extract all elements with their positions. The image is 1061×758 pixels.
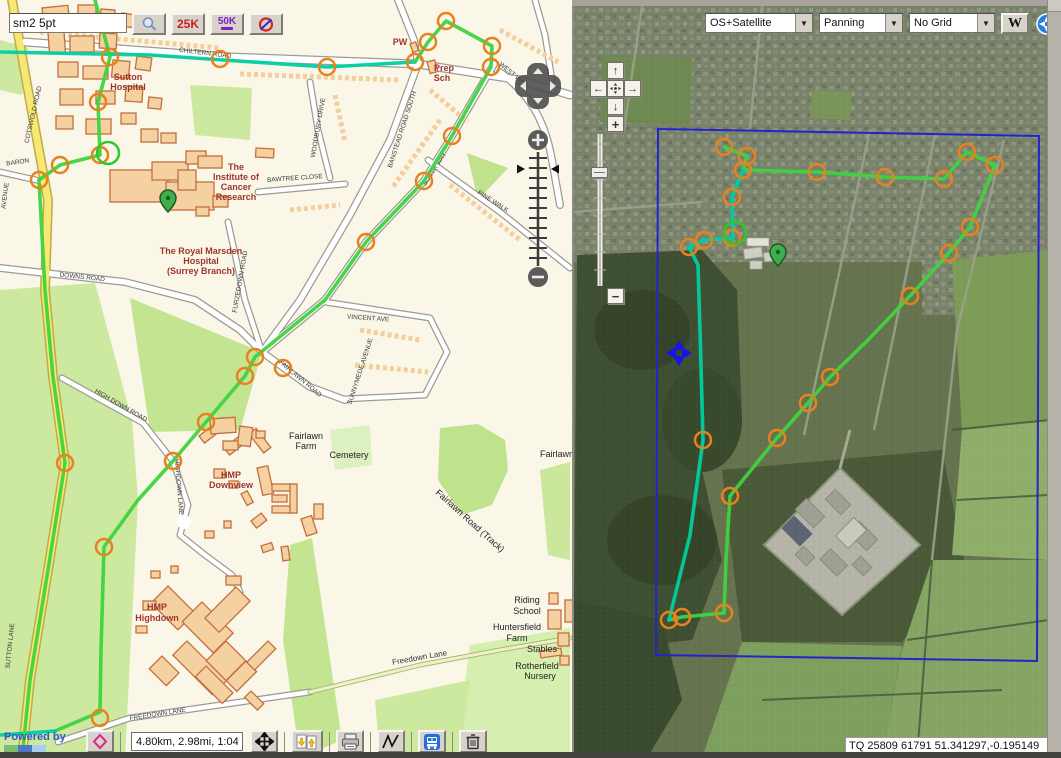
zoom-level-marker-right	[551, 165, 559, 174]
building	[178, 170, 196, 190]
satellite-canvas[interactable]	[574, 0, 1047, 758]
building	[58, 62, 78, 77]
building	[223, 441, 238, 450]
layer-select-value: OS+Satellite	[706, 17, 775, 29]
map-label: Institute of	[213, 172, 260, 182]
distance-readout[interactable]	[131, 732, 243, 751]
map-label: Fairlawn	[540, 449, 572, 459]
recenter-compass-button[interactable]	[1030, 12, 1047, 34]
pan-center-button[interactable]	[607, 80, 624, 97]
zoom-ladder[interactable]	[517, 130, 559, 287]
building	[60, 89, 83, 105]
no-symbol-icon	[257, 16, 275, 33]
route-planner-window: SuttonHospitalTheInstitute ofCancerResea…	[0, 0, 1061, 758]
map-label: The Royal Marsden	[160, 246, 243, 256]
building	[290, 484, 297, 513]
building	[224, 521, 231, 528]
building	[548, 610, 561, 629]
zoom-slider[interactable]	[591, 134, 609, 286]
map-label: Prep	[434, 63, 455, 73]
mode-select[interactable]: Panning ▼	[819, 13, 903, 33]
chevron-down-icon[interactable]: ▼	[795, 14, 812, 32]
print-button[interactable]	[336, 730, 364, 753]
map-label: Riding	[514, 595, 540, 605]
zoom-in-button[interactable]: +	[607, 116, 624, 132]
map-label: Cancer	[221, 182, 252, 192]
window-edge-bottom	[0, 752, 1061, 758]
scale-25k-button[interactable]: 25K	[171, 13, 205, 35]
trash-icon	[465, 733, 481, 750]
building	[256, 148, 274, 158]
building	[226, 576, 241, 585]
building	[256, 431, 265, 438]
route-diamond-icon	[91, 733, 109, 750]
building	[151, 571, 160, 578]
routes-button[interactable]	[86, 730, 114, 753]
magnifier-icon	[140, 16, 158, 32]
map-label: Stables	[527, 644, 558, 654]
map-label: HMP	[147, 602, 167, 612]
map-label: Farm	[507, 633, 528, 643]
building	[196, 207, 209, 216]
scrollbar-strip[interactable]	[1047, 0, 1061, 758]
move-arrows-icon	[255, 732, 274, 751]
elevation-profile-button[interactable]	[377, 730, 405, 753]
map-label: Research	[216, 192, 257, 202]
building	[161, 133, 176, 143]
map-label: Farm	[296, 441, 317, 451]
chevron-down-icon[interactable]: ▼	[885, 14, 902, 32]
map-options-bar: OS+Satellite ▼ Panning ▼ No Grid ▼ W	[705, 13, 1029, 34]
map-nav-control[interactable]	[505, 58, 571, 294]
zoom-level-marker-left	[517, 165, 525, 174]
route-toolbar	[86, 730, 487, 753]
delete-route-button[interactable]	[459, 730, 487, 753]
building	[272, 506, 292, 513]
map-label: Downview	[209, 480, 254, 490]
zoom-slider-handle[interactable]	[591, 167, 608, 178]
pan-down-button[interactable]: ↓	[607, 98, 624, 115]
public-transport-button[interactable]	[418, 730, 446, 753]
grid-select[interactable]: No Grid ▼	[909, 13, 995, 33]
scale-50k-button[interactable]: 50K	[210, 13, 244, 35]
map-label: Fairlawn	[289, 431, 323, 441]
map-label: Rotherfield	[515, 661, 559, 671]
building	[558, 633, 569, 646]
scale-50k-label: 50K	[218, 18, 236, 30]
pan-up-button[interactable]: ↑	[607, 62, 624, 79]
building	[141, 129, 158, 142]
building	[70, 36, 94, 52]
building	[272, 495, 287, 502]
file-transfer-icon	[296, 733, 318, 751]
os-map-canvas[interactable]: SuttonHospitalTheInstitute ofCancerResea…	[0, 0, 572, 758]
pan-right-button[interactable]: →	[624, 80, 641, 97]
map-label: Nursery	[524, 671, 556, 681]
building	[560, 656, 569, 665]
mode-select-value: Panning	[820, 17, 868, 29]
building	[56, 116, 73, 129]
building	[281, 546, 290, 561]
building	[198, 156, 222, 168]
pan-left-button[interactable]: ←	[590, 80, 607, 97]
satellite-nav-control: ↑ ← → ↓ + −	[590, 61, 644, 307]
map-label: Highdown	[135, 613, 179, 623]
attribution-text: Powered by	[4, 731, 66, 743]
map-label: PW	[393, 37, 408, 47]
building	[237, 426, 253, 447]
building	[549, 593, 558, 604]
satellite-imagery	[574, 0, 1047, 758]
pan-cross[interactable]	[515, 63, 571, 109]
map-label: Hospital	[110, 82, 146, 92]
window-edge-top	[572, 0, 1047, 6]
building	[136, 626, 147, 633]
map-label: School	[513, 606, 541, 616]
map-label: Sutton	[114, 72, 143, 82]
map-label: (Surrey Branch)	[167, 266, 235, 276]
map-label: Cemetery	[329, 450, 369, 460]
scale-25k-label: 25K	[177, 17, 199, 31]
compass-icon	[1036, 13, 1047, 35]
chevron-down-icon[interactable]: ▼	[977, 14, 994, 32]
search-bar: 25K 50K	[9, 13, 283, 35]
grid-select-value: No Grid	[910, 17, 956, 29]
search-button[interactable]	[132, 13, 166, 35]
building	[135, 56, 152, 71]
os-map-panel[interactable]: SuttonHospitalTheInstitute ofCancerResea…	[0, 0, 572, 758]
pan-mode-button[interactable]	[250, 730, 278, 753]
building	[205, 531, 214, 538]
profile-graph-icon	[381, 733, 401, 750]
center-icon	[610, 83, 621, 94]
building	[565, 600, 572, 622]
building	[148, 97, 162, 109]
zoom-out-button[interactable]: −	[607, 288, 624, 304]
bus-icon	[423, 733, 441, 751]
building	[272, 484, 292, 491]
map-label: Huntersfield	[493, 622, 541, 632]
wikipedia-button[interactable]: W	[1001, 13, 1029, 34]
satellite-panel[interactable]: OS+Satellite ▼ Panning ▼ No Grid ▼ W ↑ ←	[572, 0, 1047, 758]
building	[171, 566, 178, 573]
map-label: Hospital	[183, 256, 219, 266]
map-label: The	[228, 162, 244, 172]
printer-icon	[341, 733, 360, 750]
import-export-gpx-button[interactable]	[291, 730, 323, 753]
building	[314, 504, 323, 519]
map-label: Sch	[434, 73, 451, 83]
building	[121, 113, 136, 124]
layer-select[interactable]: OS+Satellite ▼	[705, 13, 813, 33]
search-input[interactable]	[9, 13, 127, 33]
map-label: HMP	[221, 470, 241, 480]
clear-overlay-button[interactable]	[249, 13, 283, 35]
